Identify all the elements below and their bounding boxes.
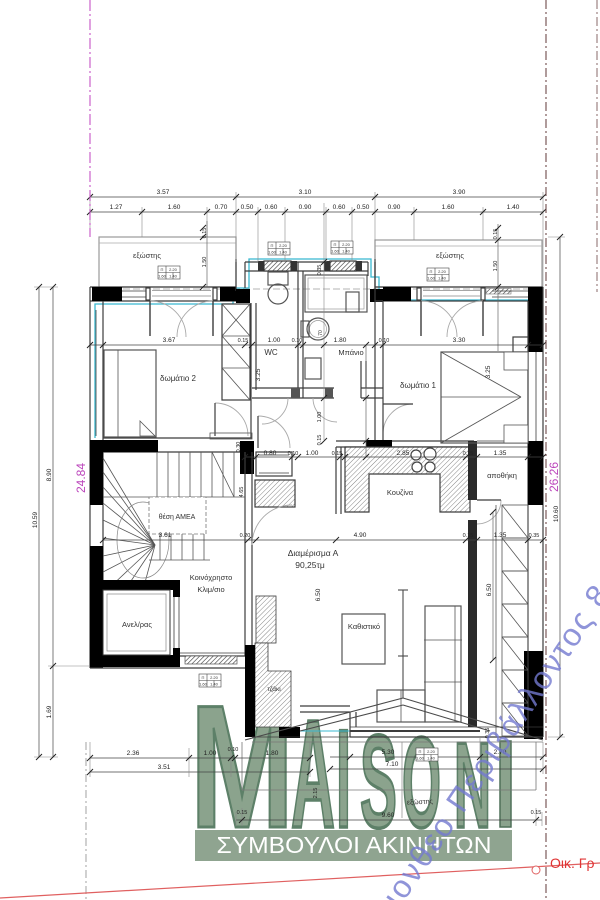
svg-text:1.40: 1.40: [507, 204, 520, 211]
svg-text:0.15: 0.15: [238, 338, 249, 344]
svg-text:0.15: 0.15: [237, 810, 248, 816]
svg-text:δωμάτιο 2: δωμάτιο 2: [160, 374, 197, 383]
svg-text:1.60: 1.60: [199, 682, 208, 687]
svg-text:3.25: 3.25: [485, 365, 492, 378]
svg-text:3.57: 3.57: [157, 189, 170, 196]
svg-text:Μπάνιο: Μπάνιο: [338, 348, 363, 357]
svg-text:Π: Π: [334, 242, 337, 247]
svg-text:0.20: 0.20: [240, 533, 251, 539]
svg-text:0.10: 0.10: [292, 338, 303, 344]
svg-text:Διαμέρισμα Α: Διαμέρισμα Α: [288, 548, 339, 558]
svg-text:5.30: 5.30: [382, 749, 395, 756]
svg-text:0.15: 0.15: [463, 451, 474, 457]
svg-text:εξώστης: εξώστης: [407, 797, 434, 806]
svg-text:0.15: 0.15: [332, 451, 343, 457]
svg-text:1.00: 1.00: [306, 450, 319, 457]
svg-text:0.50: 0.50: [241, 204, 254, 211]
svg-text:0.15: 0.15: [493, 229, 499, 240]
svg-text:1.35: 1.35: [494, 532, 507, 539]
svg-text:1.35: 1.35: [494, 450, 507, 457]
svg-text:1.40: 1.40: [342, 249, 351, 254]
svg-text:3.10: 3.10: [299, 189, 312, 196]
svg-text:αποθήκη: αποθήκη: [487, 471, 517, 480]
svg-text:26.26: 26.26: [547, 462, 561, 492]
svg-text:6.50: 6.50: [315, 588, 322, 601]
svg-text:2.85: 2.85: [397, 450, 410, 457]
svg-text:2.20: 2.20: [279, 243, 288, 248]
svg-text:εξώστης: εξώστης: [133, 251, 161, 260]
svg-text:2.20: 2.20: [169, 267, 178, 272]
svg-text:Π: Π: [161, 267, 164, 272]
svg-text:1.50: 1.50: [202, 257, 208, 268]
svg-text:0.70: 0.70: [215, 204, 228, 211]
svg-text:0.10: 0.10: [379, 338, 390, 344]
svg-text:θέση ΑΜΕΑ: θέση ΑΜΕΑ: [159, 513, 196, 521]
svg-text:1.60: 1.60: [442, 204, 455, 211]
svg-text:1.40: 1.40: [438, 276, 447, 281]
svg-text:0.60: 0.60: [333, 204, 346, 211]
svg-text:0.10: 0.10: [288, 451, 299, 457]
svg-text:Οικ. Γρ: Οικ. Γρ: [550, 855, 594, 871]
svg-text:0.35: 0.35: [529, 533, 540, 539]
svg-text:0.15: 0.15: [463, 533, 474, 539]
svg-text:2.15: 2.15: [313, 788, 319, 799]
svg-text:Κλιμ/σιο: Κλιμ/σιο: [197, 585, 224, 594]
svg-text:δωμάτιο 1: δωμάτιο 1: [400, 381, 437, 390]
svg-text:0.15: 0.15: [317, 435, 323, 446]
svg-text:1.40: 1.40: [169, 274, 178, 279]
svg-text:7.10: 7.10: [386, 761, 399, 768]
svg-text:Κοινόχρηστο: Κοινόχρηστο: [190, 573, 233, 582]
svg-text:3.61: 3.61: [159, 532, 172, 539]
svg-text:WC: WC: [264, 348, 278, 357]
svg-text:0.30: 0.30: [236, 442, 242, 453]
svg-text:1.60: 1.60: [416, 756, 425, 761]
svg-text:2.20: 2.20: [427, 749, 436, 754]
svg-text:1.50: 1.50: [493, 261, 499, 272]
svg-text:6.50: 6.50: [486, 583, 493, 596]
svg-text:Καθιστικό: Καθιστικό: [348, 622, 380, 631]
svg-text:3.51: 3.51: [158, 764, 171, 771]
svg-text:3.25: 3.25: [255, 368, 262, 381]
svg-text:1.27: 1.27: [110, 204, 123, 211]
svg-text:1.60: 1.60: [158, 274, 167, 279]
svg-text:2.20: 2.20: [342, 242, 351, 247]
svg-text:1.60: 1.60: [331, 249, 340, 254]
svg-text:1.69: 1.69: [46, 705, 53, 718]
svg-text:1.00: 1.00: [268, 337, 281, 344]
svg-text:1.60: 1.60: [268, 250, 277, 255]
svg-text:0.35: 0.35: [317, 265, 323, 276]
svg-text:70: 70: [318, 330, 324, 336]
svg-text:9.60: 9.60: [382, 812, 395, 819]
svg-text:10.59: 10.59: [32, 511, 39, 528]
svg-text:3.30: 3.30: [453, 337, 466, 344]
svg-text:Π: Π: [419, 749, 422, 754]
svg-text:8.90: 8.90: [46, 468, 53, 481]
svg-text:Κουζίνα: Κουζίνα: [387, 488, 414, 497]
svg-text:0.15: 0.15: [531, 810, 542, 816]
svg-text:1.40: 1.40: [427, 756, 436, 761]
svg-text:0.60: 0.60: [265, 204, 278, 211]
svg-text:3.67: 3.67: [163, 337, 176, 344]
svg-text:Ανελ/ρας: Ανελ/ρας: [122, 620, 152, 629]
svg-text:1.00: 1.00: [204, 750, 217, 757]
svg-text:1.80: 1.80: [266, 750, 279, 757]
svg-text:90,25τμ: 90,25τμ: [295, 560, 325, 570]
svg-text:1.80: 1.80: [334, 337, 347, 344]
svg-text:4.65: 4.65: [239, 487, 245, 498]
svg-text:0.90: 0.90: [388, 204, 401, 211]
svg-text:Π: Π: [202, 675, 205, 680]
svg-text:Π: Π: [430, 269, 433, 274]
svg-text:2.36: 2.36: [127, 750, 140, 757]
svg-text:0.15: 0.15: [202, 228, 208, 239]
svg-text:24.84: 24.84: [74, 463, 88, 493]
svg-text:1.60: 1.60: [168, 204, 181, 211]
svg-text:1.00: 1.00: [317, 412, 323, 423]
svg-text:2.20: 2.20: [438, 269, 447, 274]
svg-text:1.40: 1.40: [279, 250, 288, 255]
svg-text:1.40: 1.40: [210, 682, 219, 687]
svg-text:εξώστης: εξώστης: [436, 251, 464, 260]
svg-text:3.90: 3.90: [453, 189, 466, 196]
svg-text:0.90: 0.90: [299, 204, 312, 211]
svg-text:0.10: 0.10: [228, 747, 239, 753]
svg-text:2.20: 2.20: [210, 675, 219, 680]
svg-text:10.60: 10.60: [553, 505, 560, 522]
svg-text:0.80: 0.80: [264, 450, 277, 457]
svg-text:0.50: 0.50: [357, 204, 370, 211]
svg-text:4.90: 4.90: [354, 532, 367, 539]
svg-text:1.60: 1.60: [427, 276, 436, 281]
svg-text:τζάκι: τζάκι: [267, 685, 281, 693]
svg-text:Π: Π: [271, 243, 274, 248]
